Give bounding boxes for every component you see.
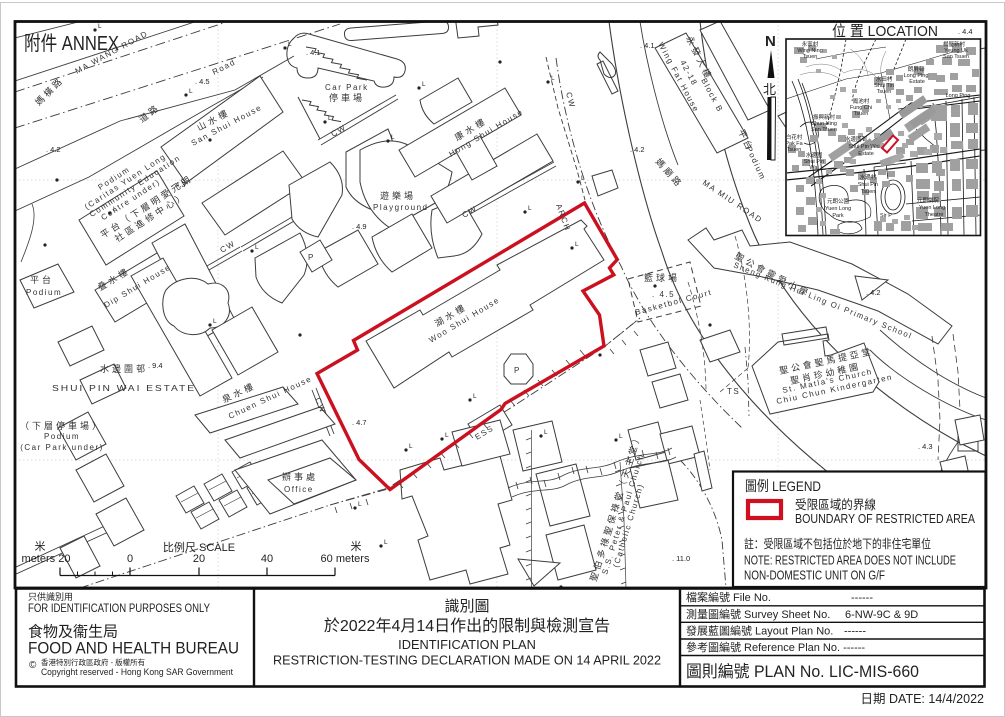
svg-text:. 9.4: . 9.4: [148, 361, 163, 370]
svg-text:BOUNDARY OF RESTRICTED AREA: BOUNDARY OF RESTRICTED AREA: [795, 511, 975, 526]
svg-text:Tsuen: Tsuen: [861, 189, 876, 195]
svg-text:FOR IDENTIFICATION PURPOSES ON: FOR IDENTIFICATION PURPOSES ONLY: [28, 603, 210, 615]
svg-text:籃球場: 籃球場: [644, 272, 680, 283]
svg-text:CW: CW: [330, 123, 349, 139]
svg-text:Yuen Long: Yuen Long: [825, 206, 851, 212]
svg-text:. 4.7: . 4.7: [352, 418, 367, 427]
svg-text:L: L: [358, 501, 362, 508]
svg-text:Shui Pin: Shui Pin: [858, 182, 879, 188]
svg-text:楊屋新村: 楊屋新村: [943, 40, 966, 48]
svg-text:. 4.3: . 4.3: [918, 442, 933, 451]
svg-text:. 4.3: . 4.3: [171, 180, 186, 189]
svg-text:L: L: [189, 88, 193, 95]
svg-text:Playground: Playground: [373, 203, 428, 212]
svg-text:CW: CW: [564, 91, 577, 109]
svg-text:水邊村: 水邊村: [860, 173, 877, 181]
svg-text:遊樂場: 遊樂場: [380, 190, 416, 201]
svg-text:20: 20: [193, 553, 205, 565]
svg-text:平台: 平台: [30, 274, 54, 285]
svg-text:P: P: [514, 366, 521, 375]
svg-text:. 11.0: . 11.0: [672, 554, 690, 563]
svg-text:只供識別用: 只供識別用: [28, 591, 73, 602]
svg-text:Park: Park: [832, 213, 844, 219]
svg-text:L: L: [288, 41, 292, 48]
svg-text:L: L: [581, 175, 585, 182]
svg-text:停車場: 停車場: [329, 92, 365, 103]
svg-text:Tsuen: Tsuen: [854, 111, 869, 117]
svg-text:參考圖編號 Reference Plan No. ---: 參考圖編號 Reference Plan No. ------: [686, 640, 865, 654]
svg-text:Podium: Podium: [744, 145, 767, 182]
svg-text:CW: CW: [219, 239, 238, 255]
svg-text:L: L: [328, 115, 332, 122]
svg-text:San Tsuen: San Tsuen: [943, 54, 969, 60]
svg-text:L: L: [473, 393, 477, 400]
svg-text:鳳池村: 鳳池村: [853, 97, 870, 105]
svg-text:媽廟路: 媽廟路: [654, 156, 686, 190]
svg-text:Copyright reserved - Hong Kong: Copyright reserved - Hong Kong SAR Gover…: [41, 667, 233, 678]
svg-text:於2022年4月14日作出的限制與檢測宣告: 於2022年4月14日作出的限制與檢測宣告: [324, 617, 610, 635]
svg-text:測量圖編號 Survey Sheet No.: 測量圖編號 Survey Sheet No.: [686, 607, 830, 621]
svg-text:L: L: [391, 134, 395, 141]
svg-text:檔案編號 File No.: 檔案編號 File No.: [686, 590, 771, 604]
svg-text:Road: Road: [211, 57, 237, 76]
svg-text:Tsuen: Tsuen: [877, 89, 892, 95]
svg-text:NOTE: RESTRICTED AREA DOES NOT: NOTE: RESTRICTED AREA DOES NOT INCLUDE: [744, 554, 956, 568]
svg-text:------: ------: [844, 626, 866, 638]
svg-text:San Tsuen: San Tsuen: [811, 127, 837, 133]
svg-text:Tsuen: Tsuen: [787, 147, 802, 153]
svg-text:Estate: Estate: [858, 151, 874, 157]
svg-text:NON-DOMESTIC UNIT ON G/F: NON-DOMESTIC UNIT ON G/F: [744, 569, 885, 583]
svg-text:L: L: [409, 443, 413, 450]
svg-text:P: P: [308, 253, 315, 262]
svg-text:水田村: 水田村: [876, 75, 893, 83]
svg-text:Car Park: Car Park: [325, 83, 369, 92]
svg-text:註：受限區域不包括位於地下的非住宅單位: 註：受限區域不包括位於地下的非住宅單位: [744, 536, 931, 551]
svg-text:L: L: [528, 205, 532, 212]
svg-text:(Car Park under): (Car Park under): [20, 443, 104, 452]
svg-text:（下層停車場）: （下層停車場）: [20, 420, 104, 431]
svg-text:L: L: [544, 429, 548, 436]
svg-text:元朗劇院: 元朗劇院: [917, 196, 940, 204]
svg-text:白花村: 白花村: [786, 133, 803, 141]
svg-text:米: 米: [351, 540, 362, 553]
svg-text:. 4.2: . 4.2: [866, 288, 881, 297]
svg-text:Yuen Long: Yuen Long: [919, 205, 945, 211]
svg-text:Long Ping: Long Ping: [946, 93, 971, 99]
svg-text:. 4.2: . 4.2: [46, 145, 61, 154]
svg-text:水邊圍邨: 水邊圍邨: [100, 363, 148, 374]
svg-text:Estate: Estate: [909, 79, 925, 85]
svg-text:Podium: Podium: [44, 432, 80, 441]
svg-text:RESTRICTION-TESTING DECLARATIO: RESTRICTION-TESTING DECLARATION MADE ON …: [273, 653, 661, 668]
svg-text:北: 北: [763, 82, 776, 97]
svg-text:FOOD AND HEALTH BUREAU: FOOD AND HEALTH BUREAU: [28, 639, 239, 658]
svg-text:MA MIU ROAD: MA MIU ROAD: [701, 178, 764, 225]
svg-text:朗屏邨: 朗屏邨: [908, 65, 925, 73]
svg-text:IDENTIFICATION PLAN: IDENTIFICATION PLAN: [398, 637, 536, 652]
svg-text:L: L: [445, 432, 449, 439]
svg-text:受限區域的界線: 受限區域的界線: [795, 497, 876, 512]
svg-text:TS: TS: [727, 387, 740, 396]
svg-text:香港特別行政區政府 - 版權所有: 香港特別行政區政府 - 版權所有: [41, 657, 146, 667]
svg-text:L: L: [255, 244, 259, 251]
svg-text:媽橫路: 媽橫路: [33, 74, 66, 107]
svg-text:6-NW-9C & 9D: 6-NW-9C & 9D: [845, 609, 918, 621]
svg-text:附件 ANNEX: 附件 ANNEX: [24, 32, 119, 55]
svg-text:位 置 LOCATION: 位 置 LOCATION: [832, 23, 938, 40]
svg-text:0: 0: [127, 553, 133, 565]
svg-text:. 4.5: . 4.5: [195, 77, 210, 86]
svg-text:圖例 LEGEND: 圖例 LEGEND: [745, 478, 821, 494]
svg-text:. 4.4: . 4.4: [958, 27, 973, 36]
svg-text:. 4.9: . 4.9: [352, 222, 367, 231]
svg-text:米: 米: [35, 540, 46, 553]
svg-text:SHUI PIN WAI ESTATE: SHUI PIN WAI ESTATE: [52, 384, 196, 393]
svg-text:道路: 道路: [136, 101, 162, 124]
svg-text:meters 20: meters 20: [22, 553, 71, 565]
svg-text:Shui Pin Wai: Shui Pin Wai: [848, 144, 879, 150]
svg-text:. 4.2: . 4.2: [630, 145, 645, 154]
svg-text:Tsuen: Tsuen: [803, 54, 818, 60]
svg-text:Wai: Wai: [809, 165, 818, 171]
svg-text:比例尺 SCALE: 比例尺 SCALE: [163, 540, 235, 554]
svg-text:L: L: [575, 241, 579, 248]
svg-text:Sir P: Sir P: [880, 213, 892, 219]
svg-text:Podium: Podium: [26, 288, 62, 297]
svg-text:40: 40: [261, 553, 273, 565]
svg-text:Office: Office: [284, 485, 314, 494]
svg-text:振興新村: 振興新村: [813, 113, 836, 121]
svg-text:水邊圍邨: 水邊圍邨: [845, 135, 868, 143]
svg-text:. 4.1: . 4.1: [640, 41, 655, 50]
svg-text:永寧村: 永寧村: [802, 40, 819, 48]
svg-text:L: L: [213, 318, 217, 325]
svg-text:------: ------: [851, 592, 873, 604]
svg-text:L: L: [113, 206, 117, 213]
svg-text:. 4.1: . 4.1: [306, 48, 321, 57]
svg-text:發展藍圖編號 Layout Plan No.: 發展藍圖編號 Layout Plan No.: [686, 624, 833, 638]
svg-text:L: L: [422, 81, 426, 88]
svg-text:元朗公園: 元朗公園: [827, 197, 850, 205]
svg-text:L: L: [551, 75, 555, 82]
svg-text:L: L: [384, 539, 388, 546]
svg-text:L: L: [98, 23, 102, 30]
svg-text:Theatre: Theatre: [925, 212, 944, 218]
svg-text:N: N: [765, 33, 776, 50]
svg-text:L: L: [619, 433, 623, 440]
svg-text:圖則編號 PLAN No. LIC-MIS-660: 圖則編號 PLAN No. LIC-MIS-660: [686, 662, 919, 681]
svg-text:水邊圍: 水邊圍: [806, 151, 823, 159]
svg-text:日期 DATE: 14/4/2022: 日期 DATE: 14/4/2022: [861, 692, 984, 706]
svg-text:辦事處: 辦事處: [282, 471, 318, 482]
svg-text:識別圖: 識別圖: [444, 598, 489, 615]
svg-text:60 meters: 60 meters: [321, 553, 370, 565]
svg-text:©: ©: [29, 660, 37, 671]
